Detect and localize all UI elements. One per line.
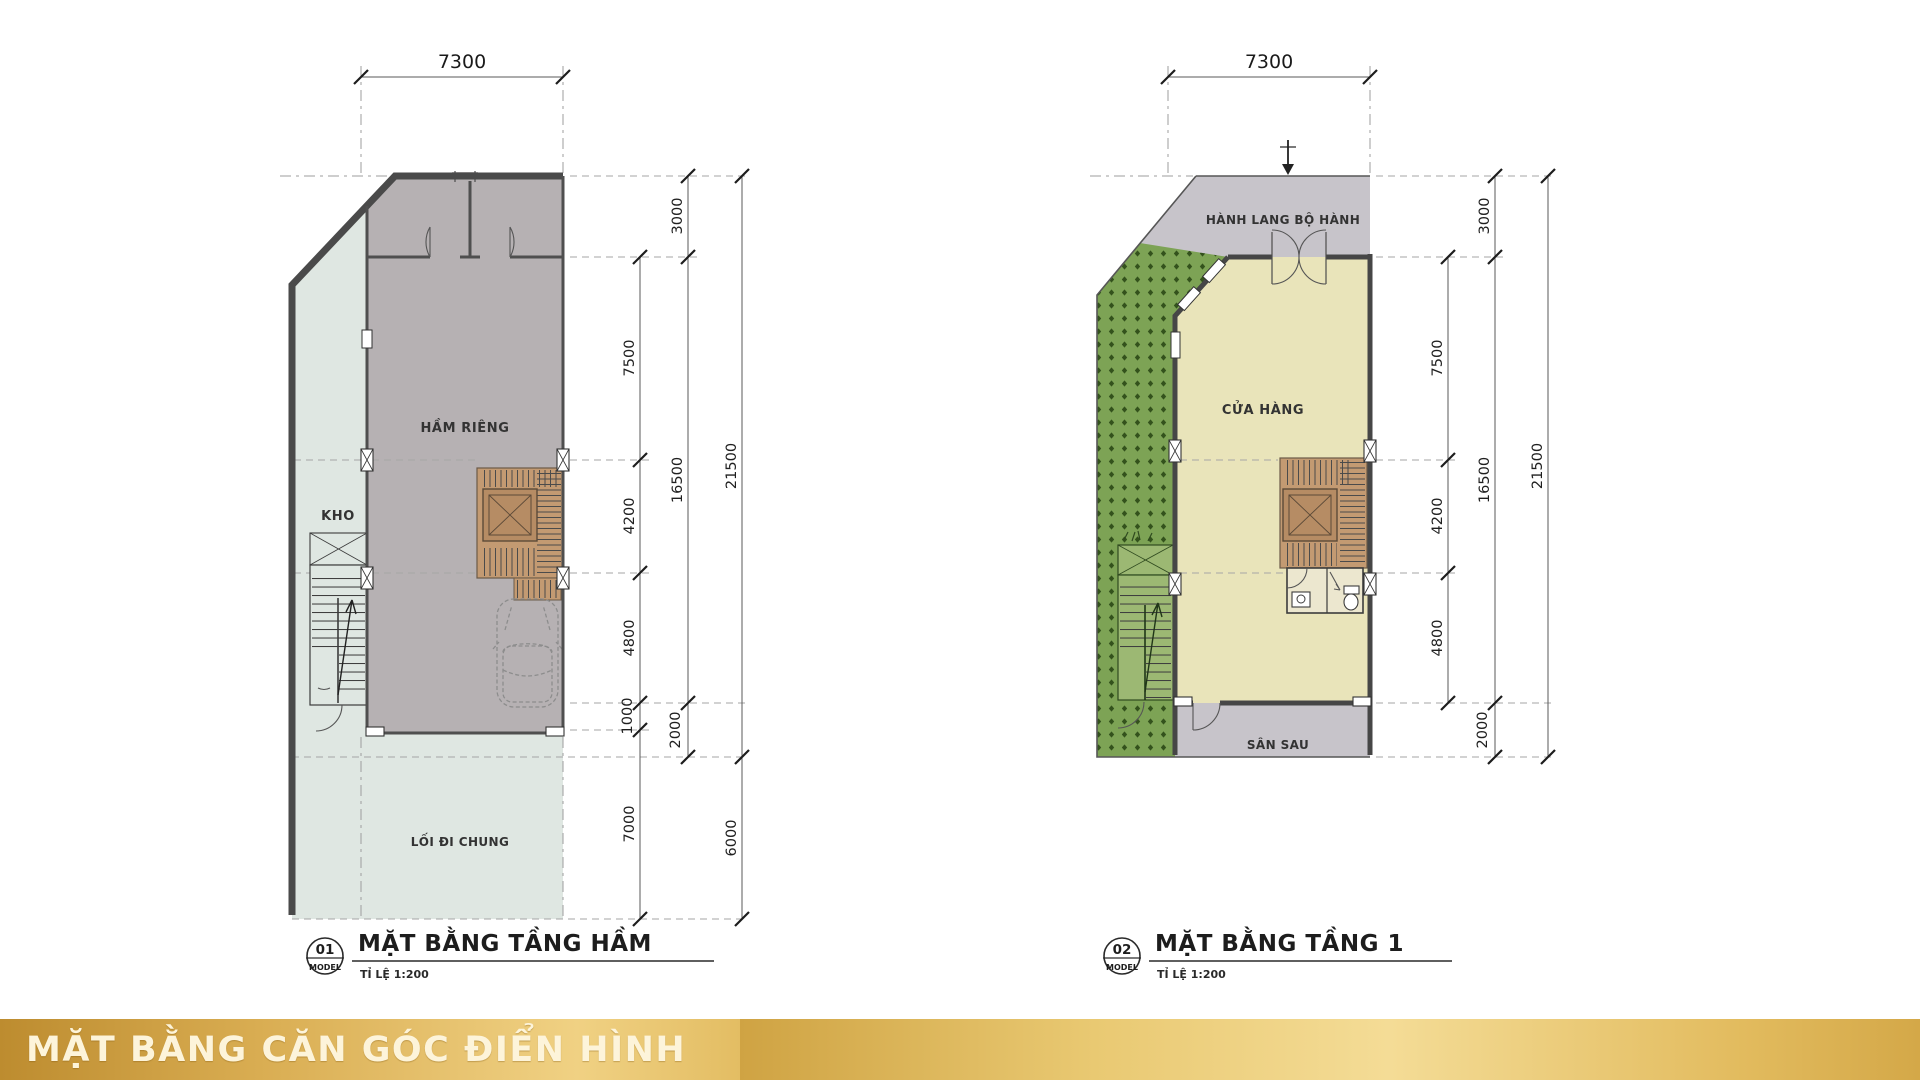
basement-scale-note: TỈ LỆ 1:200 (360, 967, 429, 981)
floor1-scale-note: TỈ LỆ 1:200 (1157, 967, 1226, 981)
floor1-title: MẶT BẰNG TẦNG 1 (1155, 926, 1404, 957)
basement-title: MẶT BẰNG TẦNG HẦM (358, 926, 652, 957)
room-label-common-walkway: LỐI ĐI CHUNG (411, 832, 509, 849)
dim-6000: 6000 (724, 820, 740, 857)
storage-stair-icon (310, 533, 367, 731)
basement-title-block: 01 MODEL MẶT BẰNG TẦNG HẦM TỈ LỆ 1:200 (306, 926, 714, 981)
dim-7500-f1: 7500 (1430, 340, 1446, 377)
dim-1000: 1000 (620, 698, 636, 735)
elevator-icon-floor1 (1283, 489, 1337, 541)
dim-4800-f1: 4800 (1430, 620, 1446, 657)
dim-16500-f1: 16500 (1477, 457, 1493, 503)
room-label-storage: KHO (321, 509, 355, 524)
room-label-shop: CỬA HÀNG (1222, 401, 1304, 418)
basement-badge-number: 01 (316, 942, 335, 958)
bottom-banner: MẶT BẰNG CĂN GÓC ĐIỂN HÌNH (0, 1019, 1920, 1080)
banner-title-block: MẶT BẰNG CĂN GÓC ĐIỂN HÌNH (0, 1019, 740, 1080)
dim-2000-f1: 2000 (1475, 712, 1491, 749)
dim-7500: 7500 (622, 340, 638, 377)
dim-top-width: 7300 (438, 51, 486, 73)
dim-7000: 7000 (622, 806, 638, 843)
dim-21500-f1: 21500 (1530, 443, 1546, 489)
floor1-badge-number: 02 (1113, 942, 1132, 958)
floor1-stair-elevator (1280, 458, 1367, 568)
dim-4200-f1: 4200 (1430, 498, 1446, 535)
basement-plan: HẦM RIÊNG KHO LỐI ĐI CHUNG 7300 7500 420… (280, 51, 750, 981)
banner-title: MẶT BẰNG CĂN GÓC ĐIỂN HÌNH (0, 1030, 686, 1070)
floor1-title-block: 02 MODEL MẶT BẰNG TẦNG 1 TỈ LỆ 1:200 (1103, 926, 1452, 981)
page: HẦM RIÊNG KHO LỐI ĐI CHUNG 7300 7500 420… (0, 0, 1920, 1080)
floor1-bathroom (1287, 568, 1363, 613)
dim-16500: 16500 (670, 457, 686, 503)
basement-unit-floor (367, 176, 563, 733)
floorplan-drawing: HẦM RIÊNG KHO LỐI ĐI CHUNG 7300 7500 420… (0, 0, 1920, 1010)
dim-4800: 4800 (622, 620, 638, 657)
basement-badge-model: MODEL (309, 963, 341, 972)
dim-2000: 2000 (668, 712, 684, 749)
floor1-plan: HÀNH LANG BỘ HÀNH CỬA HÀNG SÂN SAU 7300 … (1090, 51, 1556, 981)
floor1-garden-stair-icon (1118, 531, 1173, 728)
dim-3000-f1: 3000 (1477, 198, 1493, 235)
elevator-icon (483, 489, 537, 541)
room-label-private-basement: HẦM RIÊNG (420, 418, 509, 436)
room-label-corridor: HÀNH LANG BỘ HÀNH (1206, 212, 1360, 227)
floor1-badge-model: MODEL (1106, 963, 1138, 972)
dim-21500: 21500 (724, 443, 740, 489)
dim-4200: 4200 (622, 498, 638, 535)
dim-3000: 3000 (670, 198, 686, 235)
banner-gold-bar (740, 1019, 1920, 1080)
dim-top-width-floor1: 7300 (1245, 51, 1293, 73)
room-label-backyard: SÂN SAU (1247, 737, 1309, 752)
entry-arrow-icon (1280, 140, 1296, 175)
